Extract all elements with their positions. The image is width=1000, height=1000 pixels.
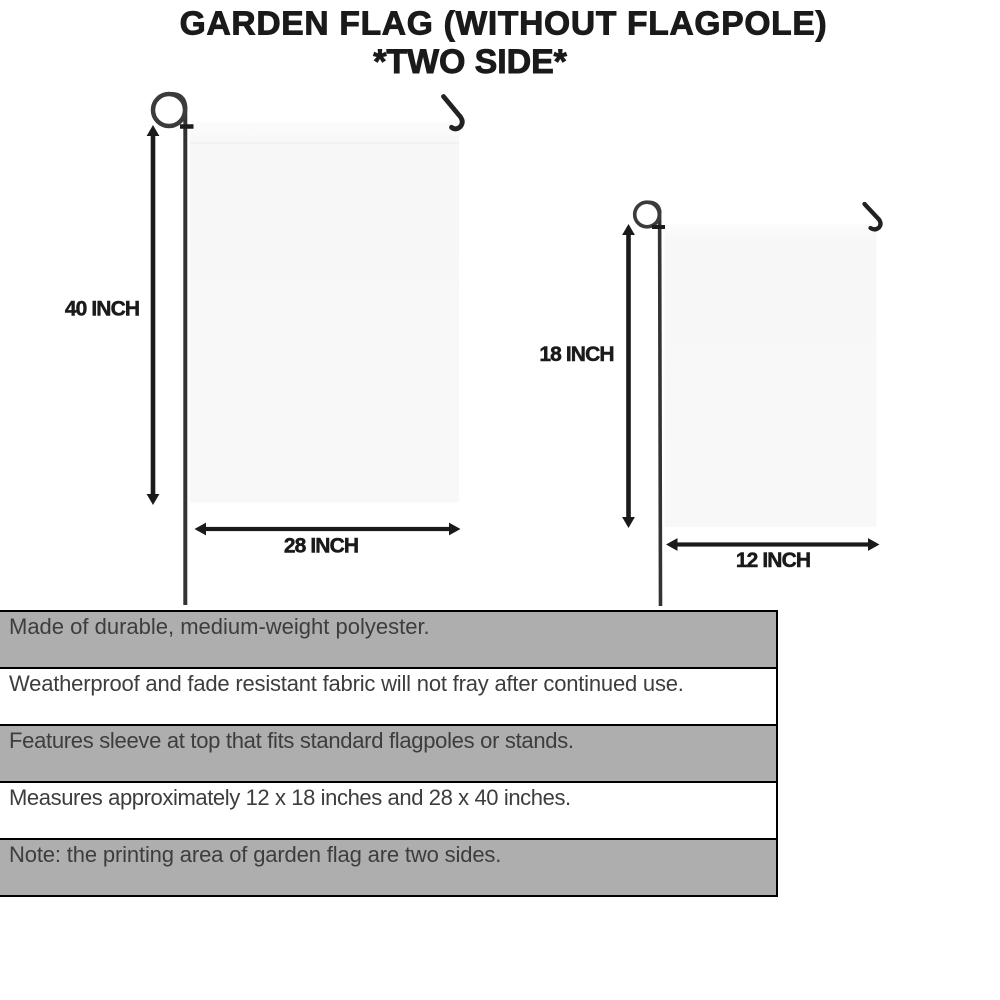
svg-text:*TWO SIDE*: *TWO SIDE* [373,43,567,81]
svg-text:18 INCH: 18 INCH [539,343,613,366]
svg-text:40 INCH: 40 INCH [65,298,139,321]
svg-text:12 INCH: 12 INCH [736,549,810,572]
svg-text:GARDEN FLAG (WITHOUT FLAGPOLE): GARDEN FLAG (WITHOUT FLAGPOLE) [180,6,828,43]
svg-text:28 INCH: 28 INCH [284,535,358,558]
